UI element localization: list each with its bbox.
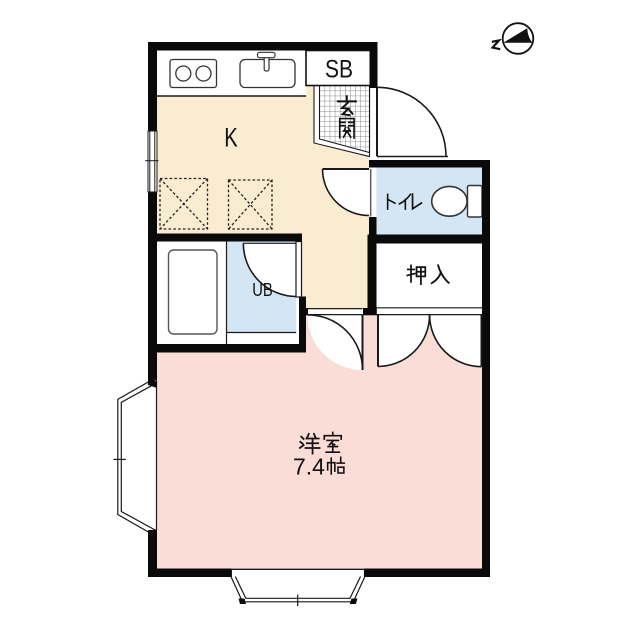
svg-text:SB: SB [325,56,353,84]
svg-text:UB: UB [252,279,273,300]
svg-text:7.4: 7.4 [293,454,325,480]
svg-text:K: K [224,123,238,153]
